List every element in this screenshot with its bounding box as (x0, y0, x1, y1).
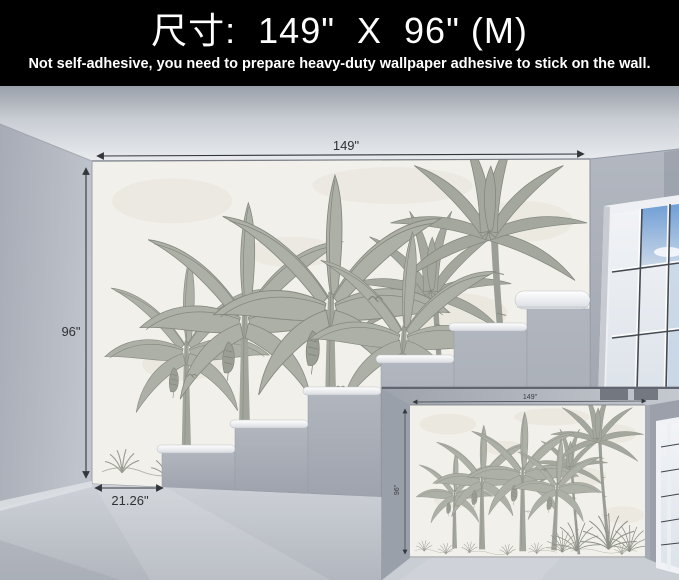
inset-left-wall (382, 389, 410, 580)
window-sky-pane (641, 204, 679, 268)
adhesive-note: Not self-adhesive, you need to prepare h… (0, 55, 679, 74)
inset-ceiling-coffer (600, 389, 628, 400)
height-dimension-label: 96" (61, 324, 80, 339)
room-mockup: 149" 96" 149" 96" 21.26" (0, 86, 679, 580)
size-title: 尺寸: 149" X 96" (M) (0, 9, 679, 53)
left-wall (0, 124, 92, 508)
stair-tread (303, 387, 381, 395)
stair-riser (308, 394, 381, 497)
inset-window (656, 417, 679, 574)
stair-tread (449, 323, 527, 331)
panel-width-dimension-label: 21.26" (111, 493, 149, 508)
inset-height-label: 96" (394, 484, 401, 495)
inset-wallpaper (410, 393, 650, 558)
stair-tread (157, 445, 235, 453)
floor (0, 481, 382, 580)
inset-room-photo: 149" 96" (382, 387, 679, 580)
size-banner: 尺寸: 149" X 96" (M) Not self-adhesive, yo… (0, 0, 679, 86)
window (598, 195, 679, 404)
product-size-mockup-image: 尺寸: 149" X 96" (M) Not self-adhesive, yo… (0, 0, 679, 580)
wallpaper-roll (515, 291, 590, 309)
stair-riser (235, 427, 308, 493)
inset-width-label: 149" (523, 394, 538, 401)
stair-tread (230, 420, 308, 428)
width-dimension-label: 149" (333, 138, 360, 153)
inset-ceiling-coffer (634, 389, 658, 400)
stair-riser (162, 452, 235, 490)
stair-tread (376, 355, 454, 363)
